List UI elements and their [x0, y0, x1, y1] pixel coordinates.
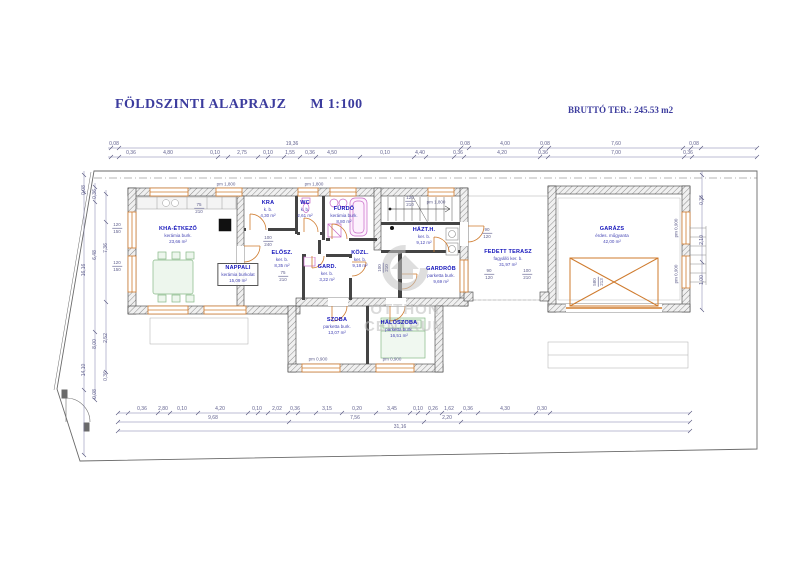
dim-label: 2,20 — [442, 415, 452, 421]
dim-label: 0,36 — [305, 150, 315, 156]
room-label-szoba: SZOBA parketta burk. 13,07 m² — [323, 317, 351, 336]
dim-label: 4,00 — [500, 141, 510, 147]
dim-label: 1,62 — [444, 406, 454, 412]
room-name: ELŐSZ. — [271, 250, 292, 257]
dim-label: 0,20 — [352, 406, 362, 412]
dim-label: 4,50 — [327, 150, 337, 156]
room-area: 13,07 m² — [323, 330, 351, 336]
dim-label: 2,10 — [699, 235, 705, 245]
room-label-kha-etkezo: KHA-ÉTKEZŐ kerámia burk. 23,66 m² — [159, 226, 197, 245]
dim-label: 0,36 — [453, 150, 463, 156]
room-name: WC — [297, 200, 312, 207]
room-label-wc: WC k. b. 2,61 m² — [297, 200, 312, 219]
plan-scale: M 1:100 — [310, 97, 362, 112]
room-area: 9,69 m² — [426, 279, 456, 285]
dim-label-total: 31,16 — [394, 424, 407, 430]
room-area: 42,00 m² — [595, 239, 629, 245]
dim-label: 0,36 — [137, 406, 147, 412]
dim-label: 0,08 — [109, 141, 119, 147]
room-area: 3,22 m² — [318, 277, 337, 283]
opening-size: 120 150 — [112, 260, 122, 272]
opening-height: 150 — [112, 266, 122, 273]
dim-label: 7,60 — [611, 141, 621, 147]
opening-size: 75 210 — [278, 270, 288, 282]
opening-height: 150 — [112, 228, 122, 235]
dim-label: 0,30 — [537, 406, 547, 412]
dim-label: 0,36 — [538, 150, 548, 156]
dim-label: 0,36 — [290, 406, 300, 412]
dim-label: 0,08 — [81, 185, 87, 195]
dim-label: 0,10 — [210, 150, 220, 156]
dim-label: 0,10 — [380, 150, 390, 156]
dim-label: 8,00 — [92, 339, 98, 349]
parapet-label: pm 1,800 — [427, 200, 446, 205]
dim-label: 4,30 — [500, 406, 510, 412]
opening-size: 120 210 — [405, 195, 415, 207]
room-label-elosz: ELŐSZ. ker. b. 8,35 m² — [271, 250, 292, 269]
room-label-gardrob: GARDRÓB parketta burk. 9,69 m² — [426, 266, 456, 285]
dim-label: 19,36 — [286, 141, 299, 147]
dim-label: 0,36 — [683, 150, 693, 156]
dim-label: 0,10 — [263, 150, 273, 156]
dim-label: 3,15 — [322, 406, 332, 412]
dim-label: 3,45 — [387, 406, 397, 412]
dim-label: 4,20 — [215, 406, 225, 412]
dim-label: 0,08 — [92, 389, 98, 399]
room-name: FEDETT TERASZ — [484, 249, 532, 256]
opening-height: 210 — [278, 276, 288, 283]
room-area: 15,09 m² — [221, 278, 254, 284]
dim-label: 0,36 — [126, 150, 136, 156]
dim-label: 0,08 — [460, 141, 470, 147]
dim-label: 14,10 — [81, 364, 87, 377]
dining-table — [153, 252, 194, 302]
dim-label: 9,68 — [208, 415, 218, 421]
room-name: SZOBA — [323, 317, 351, 324]
opening-size: 120 150 — [112, 222, 122, 234]
parapet-label: pm 0,900 — [674, 219, 679, 238]
dim-label: 2,80 — [158, 406, 168, 412]
opening-height: 210 — [405, 201, 415, 208]
dim-label: 7,56 — [350, 415, 360, 421]
gross-area-label: BRUTTÓ TER.: 245.53 m2 — [568, 105, 673, 115]
room-name: GARDRÓB — [426, 266, 456, 273]
opening-size: 580 213 — [592, 277, 604, 287]
dim-label: 0,10 — [413, 406, 423, 412]
dim-label: 7,36 — [103, 243, 109, 253]
dim-label: 0,36 — [92, 189, 98, 199]
room-label-kozl: KÖZL. ker. b. 9,18 m² — [351, 250, 369, 269]
room-label-nappali: NAPPALI kerámia burkolat 15,09 m² — [217, 263, 258, 286]
opening-size: 100 240 — [263, 235, 273, 247]
dim-label: 1,55 — [285, 150, 295, 156]
room-area: 8,35 m² — [271, 263, 292, 269]
watermark-line1: OTTHON — [355, 301, 455, 318]
opening-size: 75 210 — [194, 202, 204, 214]
room-area: 9,12 m² — [413, 240, 435, 246]
room-area: 16,51 m² — [381, 333, 418, 339]
opening-size: 90 120 — [484, 268, 494, 280]
opening-height: 210 — [383, 263, 390, 273]
room-label-fedett-terasz: FEDETT TERASZ fagyálló ker. b. 31,97 m² — [484, 249, 532, 268]
chimney — [219, 219, 231, 231]
room-name: KÖZL. — [351, 250, 369, 257]
opening-height: 210 — [522, 274, 532, 281]
parapet-label: pm 0,900 — [383, 357, 402, 362]
dim-label: 4,40 — [415, 150, 425, 156]
opening-size: 100 210 — [377, 263, 389, 273]
room-label-gard: GARD. ker. b. 3,22 m² — [318, 264, 337, 283]
plan-title: FÖLDSZINTI ALAPRAJZ — [115, 97, 286, 112]
dim-label: 0,10 — [252, 406, 262, 412]
room-name: KRA — [260, 200, 275, 207]
room-name: GARÁZS — [595, 226, 629, 233]
dim-label: 2,52 — [103, 333, 109, 343]
dim-label: 16,16 — [81, 264, 87, 277]
opening-height: 213 — [598, 277, 605, 287]
room-area: 8,80 m² — [330, 219, 357, 225]
opening-height: 120 — [484, 274, 494, 281]
room-name: HÁZT.H. — [413, 227, 435, 234]
room-area: 4,30 m² — [260, 213, 275, 219]
dim-label: 0,36 — [699, 195, 705, 205]
dim-label: 7,00 — [611, 150, 621, 156]
room-name: GARD. — [318, 264, 337, 271]
room-label-haloszoba: HÁLÓSZOBA parketta burk. 16,51 m² — [381, 320, 418, 339]
parapet-label: pm 1,800 — [305, 182, 324, 187]
room-label-furdo: FÜRDŐ kerámia burk. 8,80 m² — [330, 206, 357, 225]
room-name: KHA-ÉTKEZŐ — [159, 226, 197, 233]
room-area: 23,66 m² — [159, 239, 197, 245]
dim-label: 4,20 — [497, 150, 507, 156]
room-name: HÁLÓSZOBA — [381, 320, 418, 327]
room-name: FÜRDŐ — [330, 206, 357, 213]
dim-label: 0,10 — [177, 406, 187, 412]
opening-size: 100 210 — [522, 268, 532, 280]
opening-height: 210 — [194, 208, 204, 215]
opening-height: 120 — [482, 233, 492, 240]
floorplan-page: OTTHON CENTRUM FÖLDSZINTI ALAPRAJZM 1:10… — [0, 0, 800, 565]
parapet-label: pm 0,900 — [309, 357, 328, 362]
dim-label: 6,48 — [92, 250, 98, 260]
page-title: FÖLDSZINTI ALAPRAJZM 1:100 — [115, 97, 363, 113]
parapet-label: pm 1,800 — [217, 182, 236, 187]
opening-height: 240 — [263, 241, 273, 248]
dim-label: 0,08 — [540, 141, 550, 147]
parapet-label: pm 0,900 — [674, 265, 679, 284]
room-name: NAPPALI — [221, 265, 254, 272]
dim-label: 0,08 — [689, 141, 699, 147]
opening-size: 90 120 — [482, 227, 492, 239]
dim-label: 4,80 — [163, 150, 173, 156]
dim-label: 2,02 — [272, 406, 282, 412]
dim-label: 0,26 — [428, 406, 438, 412]
room-label-hazth: HÁZT.H. ker. b. 9,12 m² — [413, 227, 435, 246]
room-label-garazs: GARÁZS érdes. műgyanta 42,00 m² — [595, 226, 629, 245]
room-label-kra: KRA k. b. 4,30 m² — [260, 200, 275, 219]
room-area: 9,18 m² — [351, 263, 369, 269]
dim-label: 0,36 — [103, 371, 109, 381]
dim-label: 2,75 — [237, 150, 247, 156]
dim-label: 1,00 — [699, 275, 705, 285]
room-area: 2,61 m² — [297, 213, 312, 219]
dim-label: 0,36 — [463, 406, 473, 412]
